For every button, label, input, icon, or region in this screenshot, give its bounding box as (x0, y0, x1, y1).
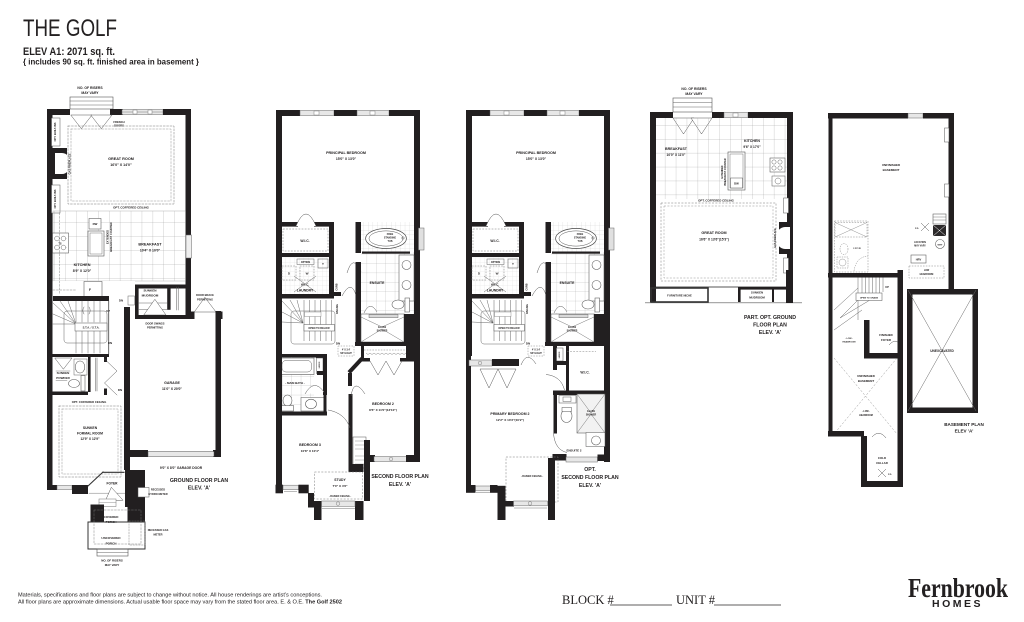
svg-text:BEDROOM 2: BEDROOM 2 (372, 402, 394, 406)
svg-text:8'9" X 12'0": 8'9" X 12'0" (73, 269, 92, 273)
svg-text:OPT. COFFERED CEILING: OPT. COFFERED CEILING (72, 400, 107, 404)
svg-text:16'0" X 14'0": 16'0" X 14'0" (110, 163, 132, 167)
svg-text:LOCATION: LOCATION (914, 241, 926, 244)
svg-text:ELEV 'A': ELEV 'A' (955, 429, 974, 434)
svg-text:{ includes 90 sq. ft. finished: { includes 90 sq. ft. finished area in b… (23, 57, 200, 67)
svg-text:DN: DN (118, 388, 122, 392)
svg-text:RECESSED: RECESSED (151, 488, 165, 492)
svg-text:GROUND FLOOR PLAN: GROUND FLOOR PLAN (170, 478, 228, 484)
svg-text:OPT. BUILT-INS: OPT. BUILT-INS (53, 189, 57, 208)
svg-text:Materials, specifications and: Materials, specifications and floor plan… (18, 593, 322, 599)
svg-text:9'0" X 8'0" GARAGE DOOR: 9'0" X 8'0" GARAGE DOOR (160, 466, 203, 470)
svg-text:S.T.A. / S.T.A.: S.T.A. / S.T.A. (83, 326, 100, 330)
svg-text:COVERED: COVERED (104, 515, 120, 519)
svg-text:ENSUITE 2: ENSUITE 2 (567, 449, 582, 453)
svg-text:LINEN: LINEN (559, 351, 561, 358)
svg-text:PORCH: PORCH (106, 542, 117, 546)
svg-text:8'6" X 11'0"(13'10"): 8'6" X 11'0"(13'10") (369, 408, 397, 412)
svg-text:SUNKEN: SUNKEN (83, 426, 98, 430)
svg-text:HEADROOM: HEADROOM (920, 273, 934, 276)
svg-text:LOW: LOW (924, 270, 930, 272)
svg-text:MAY VARY: MAY VARY (914, 245, 926, 248)
svg-text:ELEV. 'A': ELEV. 'A' (759, 330, 781, 336)
svg-text:W.I.C.: W.I.C. (580, 371, 589, 375)
svg-text:ELEV. 'A': ELEV. 'A' (188, 486, 210, 492)
svg-text:OPEN TO GRADE: OPEN TO GRADE (860, 296, 879, 299)
svg-text:UP: UP (885, 285, 889, 289)
svg-text:SECOND FLOOR PLAN: SECOND FLOOR PLAN (371, 474, 429, 480)
svg-text:GLASS: GLASS (587, 410, 595, 413)
svg-text:DOOR SWINGS: DOOR SWINGS (145, 322, 164, 326)
svg-text:FINISHED: FINISHED (879, 333, 893, 337)
svg-text:ELEV. 'A': ELEV. 'A' (389, 482, 411, 488)
svg-text:STUDY: STUDY (334, 478, 346, 482)
svg-text:UNFINISHED: UNFINISHED (882, 163, 901, 167)
svg-text:HOMES: HOMES (932, 598, 983, 610)
svg-text:DOORS: DOORS (114, 124, 124, 128)
svg-text:LINEN: LINEN (319, 361, 321, 368)
svg-text:MAY VARY: MAY VARY (685, 92, 703, 96)
svg-text:PART. OPT. GROUND: PART. OPT. GROUND (744, 315, 796, 321)
svg-text:12'9" X 12'9": 12'9" X 12'9" (80, 437, 100, 441)
svg-text:- MAIN BATH -: - MAIN BATH - (285, 381, 305, 385)
svg-text:FORMAL ROOM: FORMAL ROOM (77, 432, 103, 436)
svg-text:DOOR BRACE: DOOR BRACE (196, 293, 214, 297)
svg-text:UP: UP (106, 309, 110, 313)
svg-text:BASEMENT: BASEMENT (858, 379, 874, 383)
svg-text:TS: TS (58, 242, 62, 245)
svg-text:DN: DN (119, 299, 123, 303)
svg-text:3 PC RI: 3 PC RI (853, 248, 861, 250)
svg-text:FOYER: FOYER (881, 338, 892, 342)
svg-text:BREAKFAST COUNTER: BREAKFAST COUNTER (724, 158, 727, 185)
svg-text:KITCHEN: KITCHEN (74, 263, 91, 267)
svg-text:RECESSED GAS: RECESSED GAS (148, 528, 169, 532)
svg-text:UNIT #: UNIT # (676, 593, 716, 607)
svg-text:SUNKEN: SUNKEN (143, 288, 157, 292)
svg-text:7'0" X 4'6": 7'0" X 4'6" (332, 484, 348, 488)
svg-text:GARAGE: GARAGE (164, 381, 180, 385)
svg-text:PRIMARY BEDROOM 2: PRIMARY BEDROOM 2 (490, 412, 529, 416)
svg-text:METER: METER (153, 533, 162, 537)
svg-text:10'8" X 10'4": 10'8" X 10'4" (301, 449, 320, 453)
svg-text:12'2" X 10'2"(10'2"): 12'2" X 10'2"(10'2") (496, 418, 524, 422)
svg-text:- LOW -: - LOW - (862, 411, 870, 413)
svg-text:- RAISED CEILING -: - RAISED CEILING - (329, 495, 352, 498)
svg-text:EXTENDED: EXTENDED (106, 230, 110, 244)
svg-text:BASEMENT: BASEMENT (883, 168, 900, 172)
svg-text:SECOND FLOOR PLAN: SECOND FLOOR PLAN (561, 475, 619, 481)
svg-text:16'6" X 13'6"(15'3"): 16'6" X 13'6"(15'3") (699, 238, 729, 242)
svg-text:10'4" X 10'0": 10'4" X 10'0" (140, 249, 161, 253)
svg-text:MUDROOM: MUDROOM (142, 294, 159, 298)
svg-text:OPT. COFFERED CEILING: OPT. COFFERED CEILING (113, 206, 149, 210)
svg-text:NO. OF RISERS: NO. OF RISERS (101, 559, 123, 563)
svg-text:MUDROOM: MUDROOM (749, 296, 765, 300)
svg-text:GREAT ROOM: GREAT ROOM (108, 157, 134, 161)
svg-text:FRENCH: FRENCH (113, 120, 124, 124)
svg-text:SUNKEN: SUNKEN (57, 371, 70, 375)
svg-text:F.D.: F.D. (915, 228, 919, 230)
svg-text:SUNKEN: SUNKEN (751, 291, 763, 295)
svg-text:FLOOR PLAN: FLOOR PLAN (753, 323, 787, 329)
svg-text:UNCOVERED: UNCOVERED (101, 536, 121, 540)
svg-text:POWDER: POWDER (56, 376, 70, 380)
svg-text:UNEXCAVATED: UNEXCAVATED (930, 349, 954, 353)
svg-text:KITCHEN: KITCHEN (744, 139, 760, 143)
svg-text:9'6" X 17'0": 9'6" X 17'0" (743, 145, 761, 149)
svg-text:F.D.: F.D. (888, 474, 892, 476)
svg-text:UNFINISHED: UNFINISHED (857, 374, 875, 378)
svg-text:FOYER: FOYER (107, 482, 119, 486)
svg-text:FURNITURE NICHE: FURNITURE NICHE (667, 294, 692, 298)
svg-text:SHOWER: SHOWER (586, 415, 597, 417)
svg-text:OPT. COFFERED CEILING: OPT. COFFERED CEILING (698, 199, 734, 203)
svg-text:HEADROOM: HEADROOM (842, 341, 855, 344)
svg-text:MAY VARY: MAY VARY (81, 91, 99, 95)
svg-text:11'0" X 20'0": 11'0" X 20'0" (162, 387, 182, 391)
svg-text:F: F (89, 288, 91, 292)
svg-text:COLD: COLD (878, 456, 886, 460)
svg-text:PERMITTING: PERMITTING (197, 298, 213, 302)
svg-text:PERMITTING: PERMITTING (147, 326, 163, 330)
svg-text:HYDRO METER: HYDRO METER (148, 492, 167, 496)
svg-text:- LOW -: - LOW - (845, 338, 853, 340)
svg-text:BREAKFAST: BREAKFAST (665, 147, 688, 151)
svg-text:NO. OF RISERS: NO. OF RISERS (681, 87, 707, 91)
svg-text:All floor plans are approximat: All floor plans are approximate dimensio… (18, 600, 342, 606)
svg-text:10'0" X 11'0": 10'0" X 11'0" (667, 153, 686, 157)
svg-text:WHT: WHT (938, 244, 944, 246)
svg-text:HEADROOM: HEADROOM (859, 414, 873, 417)
svg-text:DW: DW (734, 182, 739, 186)
svg-text:BASEMENT PLAN: BASEMENT PLAN (944, 422, 984, 427)
svg-text:OPT.: OPT. (584, 467, 596, 473)
svg-text:BEDROOM 3: BEDROOM 3 (299, 443, 321, 447)
svg-text:- RAISED CEILING -: - RAISED CEILING - (521, 475, 544, 478)
svg-text:OPT. BUILT-INS: OPT. BUILT-INS (53, 122, 57, 141)
svg-text:ELEV. 'A': ELEV. 'A' (579, 483, 601, 489)
svg-text:NO. OF RISERS: NO. OF RISERS (77, 86, 103, 90)
svg-text:THE GOLF: THE GOLF (23, 15, 117, 42)
svg-text:DW: DW (93, 222, 98, 226)
svg-text:CELLAR: CELLAR (876, 461, 889, 465)
svg-text:MAY VARY: MAY VARY (105, 563, 120, 567)
svg-text:HRV: HRV (916, 258, 922, 262)
svg-text:GAS FIREPLACE: GAS FIREPLACE (774, 228, 777, 248)
svg-text:BREAKFAST: BREAKFAST (138, 243, 162, 247)
svg-text:BLOCK #: BLOCK # (562, 593, 614, 607)
svg-text:BREAKFAST COUNTER: BREAKFAST COUNTER (109, 222, 113, 252)
svg-text:GREAT ROOM: GREAT ROOM (701, 231, 726, 235)
